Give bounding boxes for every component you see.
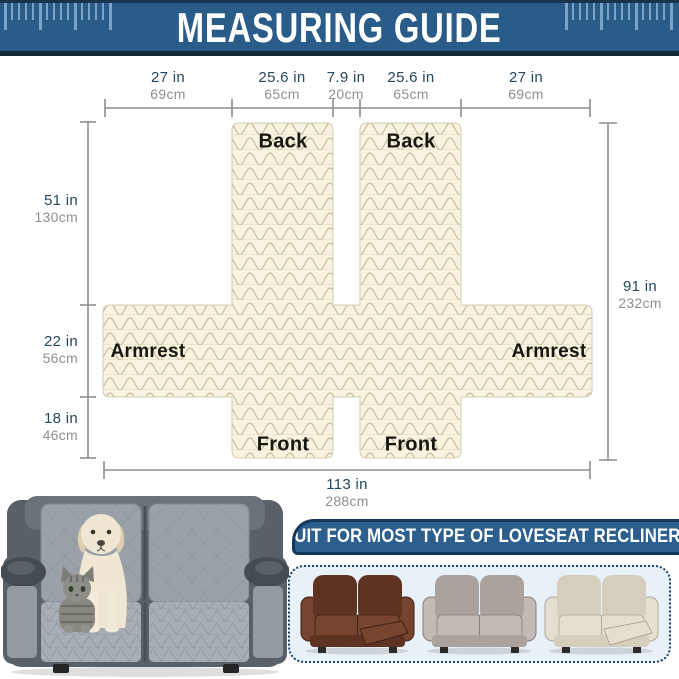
measurement-lines xyxy=(80,99,617,479)
brown-leather-recliner-icon xyxy=(300,573,415,655)
left-measurement-3: 18 in 46cm xyxy=(8,411,78,443)
measuring-guide-infographic: MEASURING GUIDE xyxy=(0,0,679,679)
top-measurement-3: 7.9 in 20cm xyxy=(327,70,366,102)
left-measurement-2: 22 in 56cm xyxy=(8,334,78,366)
panel-label-front-right: Front xyxy=(385,434,438,457)
banner-text: SUIT FOR MOST TYPE OF LOVESEAT RECLINERS xyxy=(292,526,679,548)
suitability-banner: SUIT FOR MOST TYPE OF LOVESEAT RECLINERS xyxy=(292,519,679,555)
right-measurement: 91 in 232cm xyxy=(612,279,668,311)
cover-shape xyxy=(103,123,592,458)
product-photo xyxy=(1,492,289,679)
recliner-examples-panel xyxy=(288,565,671,663)
panel-label-armrest-left: Armrest xyxy=(111,341,186,363)
left-measurement-1: 51 in 130cm xyxy=(8,193,78,225)
panel-label-armrest-right: Armrest xyxy=(512,341,587,363)
bottom-measurement: 113 in 288cm xyxy=(325,477,369,509)
top-measurement-1: 27 in 69cm xyxy=(150,70,185,102)
panel-label-back-right: Back xyxy=(386,131,435,154)
top-measurement-2: 25.6 in 65cm xyxy=(258,70,305,102)
top-measurement-4: 25.6 in 65cm xyxy=(387,70,434,102)
taupe-fabric-recliner-icon xyxy=(422,573,537,655)
beige-leather-recliner-icon xyxy=(544,573,659,655)
sofa-body xyxy=(1,496,289,673)
covered-loveseat-illustration xyxy=(1,492,289,679)
panel-label-front-left: Front xyxy=(257,434,310,457)
panel-label-back-left: Back xyxy=(258,131,307,154)
top-measurement-5: 27 in 69cm xyxy=(508,70,543,102)
